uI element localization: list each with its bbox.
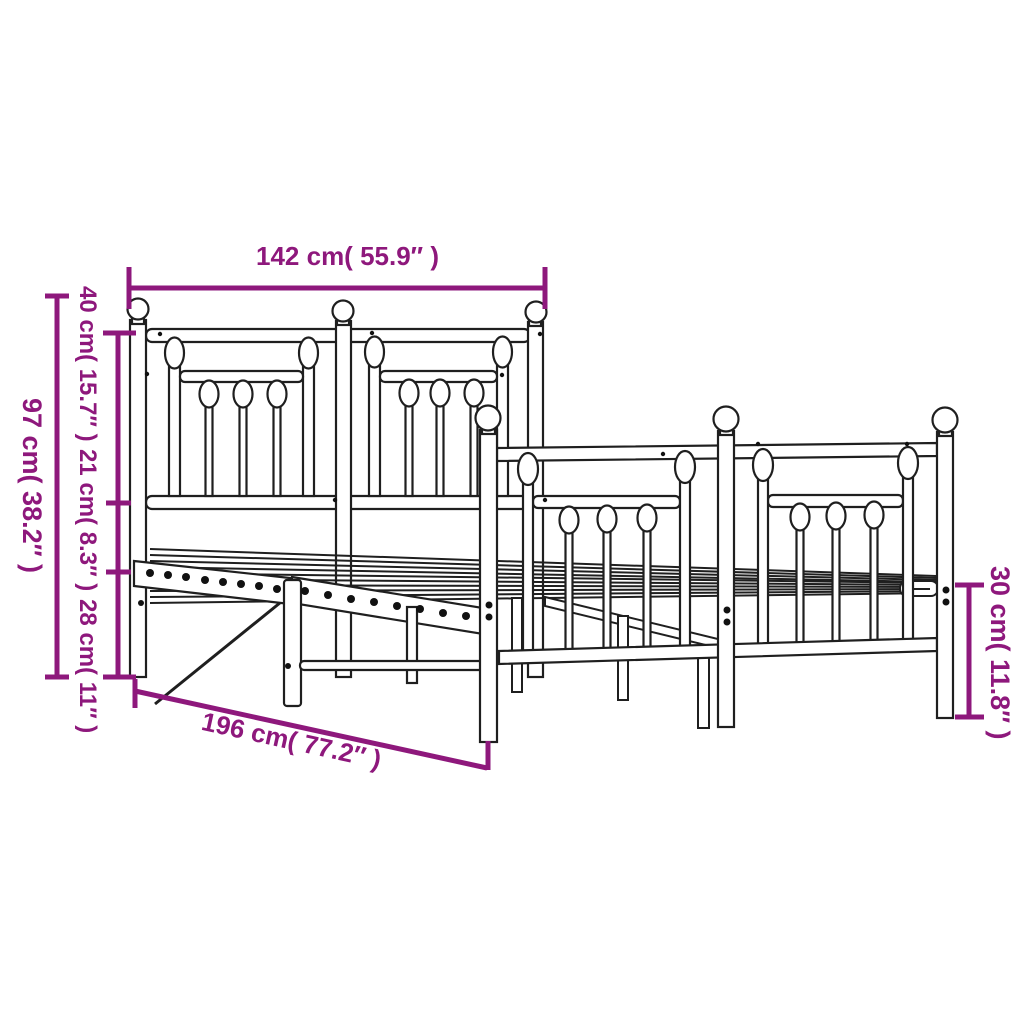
bed-frame-line-drawing bbox=[0, 0, 1024, 1024]
dimension-label-total-height: 97 cm( 38.2″ ) bbox=[18, 398, 45, 573]
product-dimension-diagram: 142 cm( 55.9″ ) 97 cm( 38.2″ ) 40 cm( 15… bbox=[0, 0, 1024, 1024]
dimension-label-headboard-mid-section: 21 cm( 8.3″ ) bbox=[75, 449, 99, 591]
side-rail-and-legs bbox=[134, 561, 488, 706]
dimension-label-width: 142 cm( 55.9″ ) bbox=[256, 243, 439, 269]
dimension-label-footboard-height: 30 cm( 11.8″ ) bbox=[986, 566, 1013, 740]
dimension-label-headboard-top-section: 40 cm( 15.7″ ) bbox=[75, 286, 99, 442]
dimension-label-underbed-height: 28 cm( 11″ ) bbox=[75, 599, 99, 733]
